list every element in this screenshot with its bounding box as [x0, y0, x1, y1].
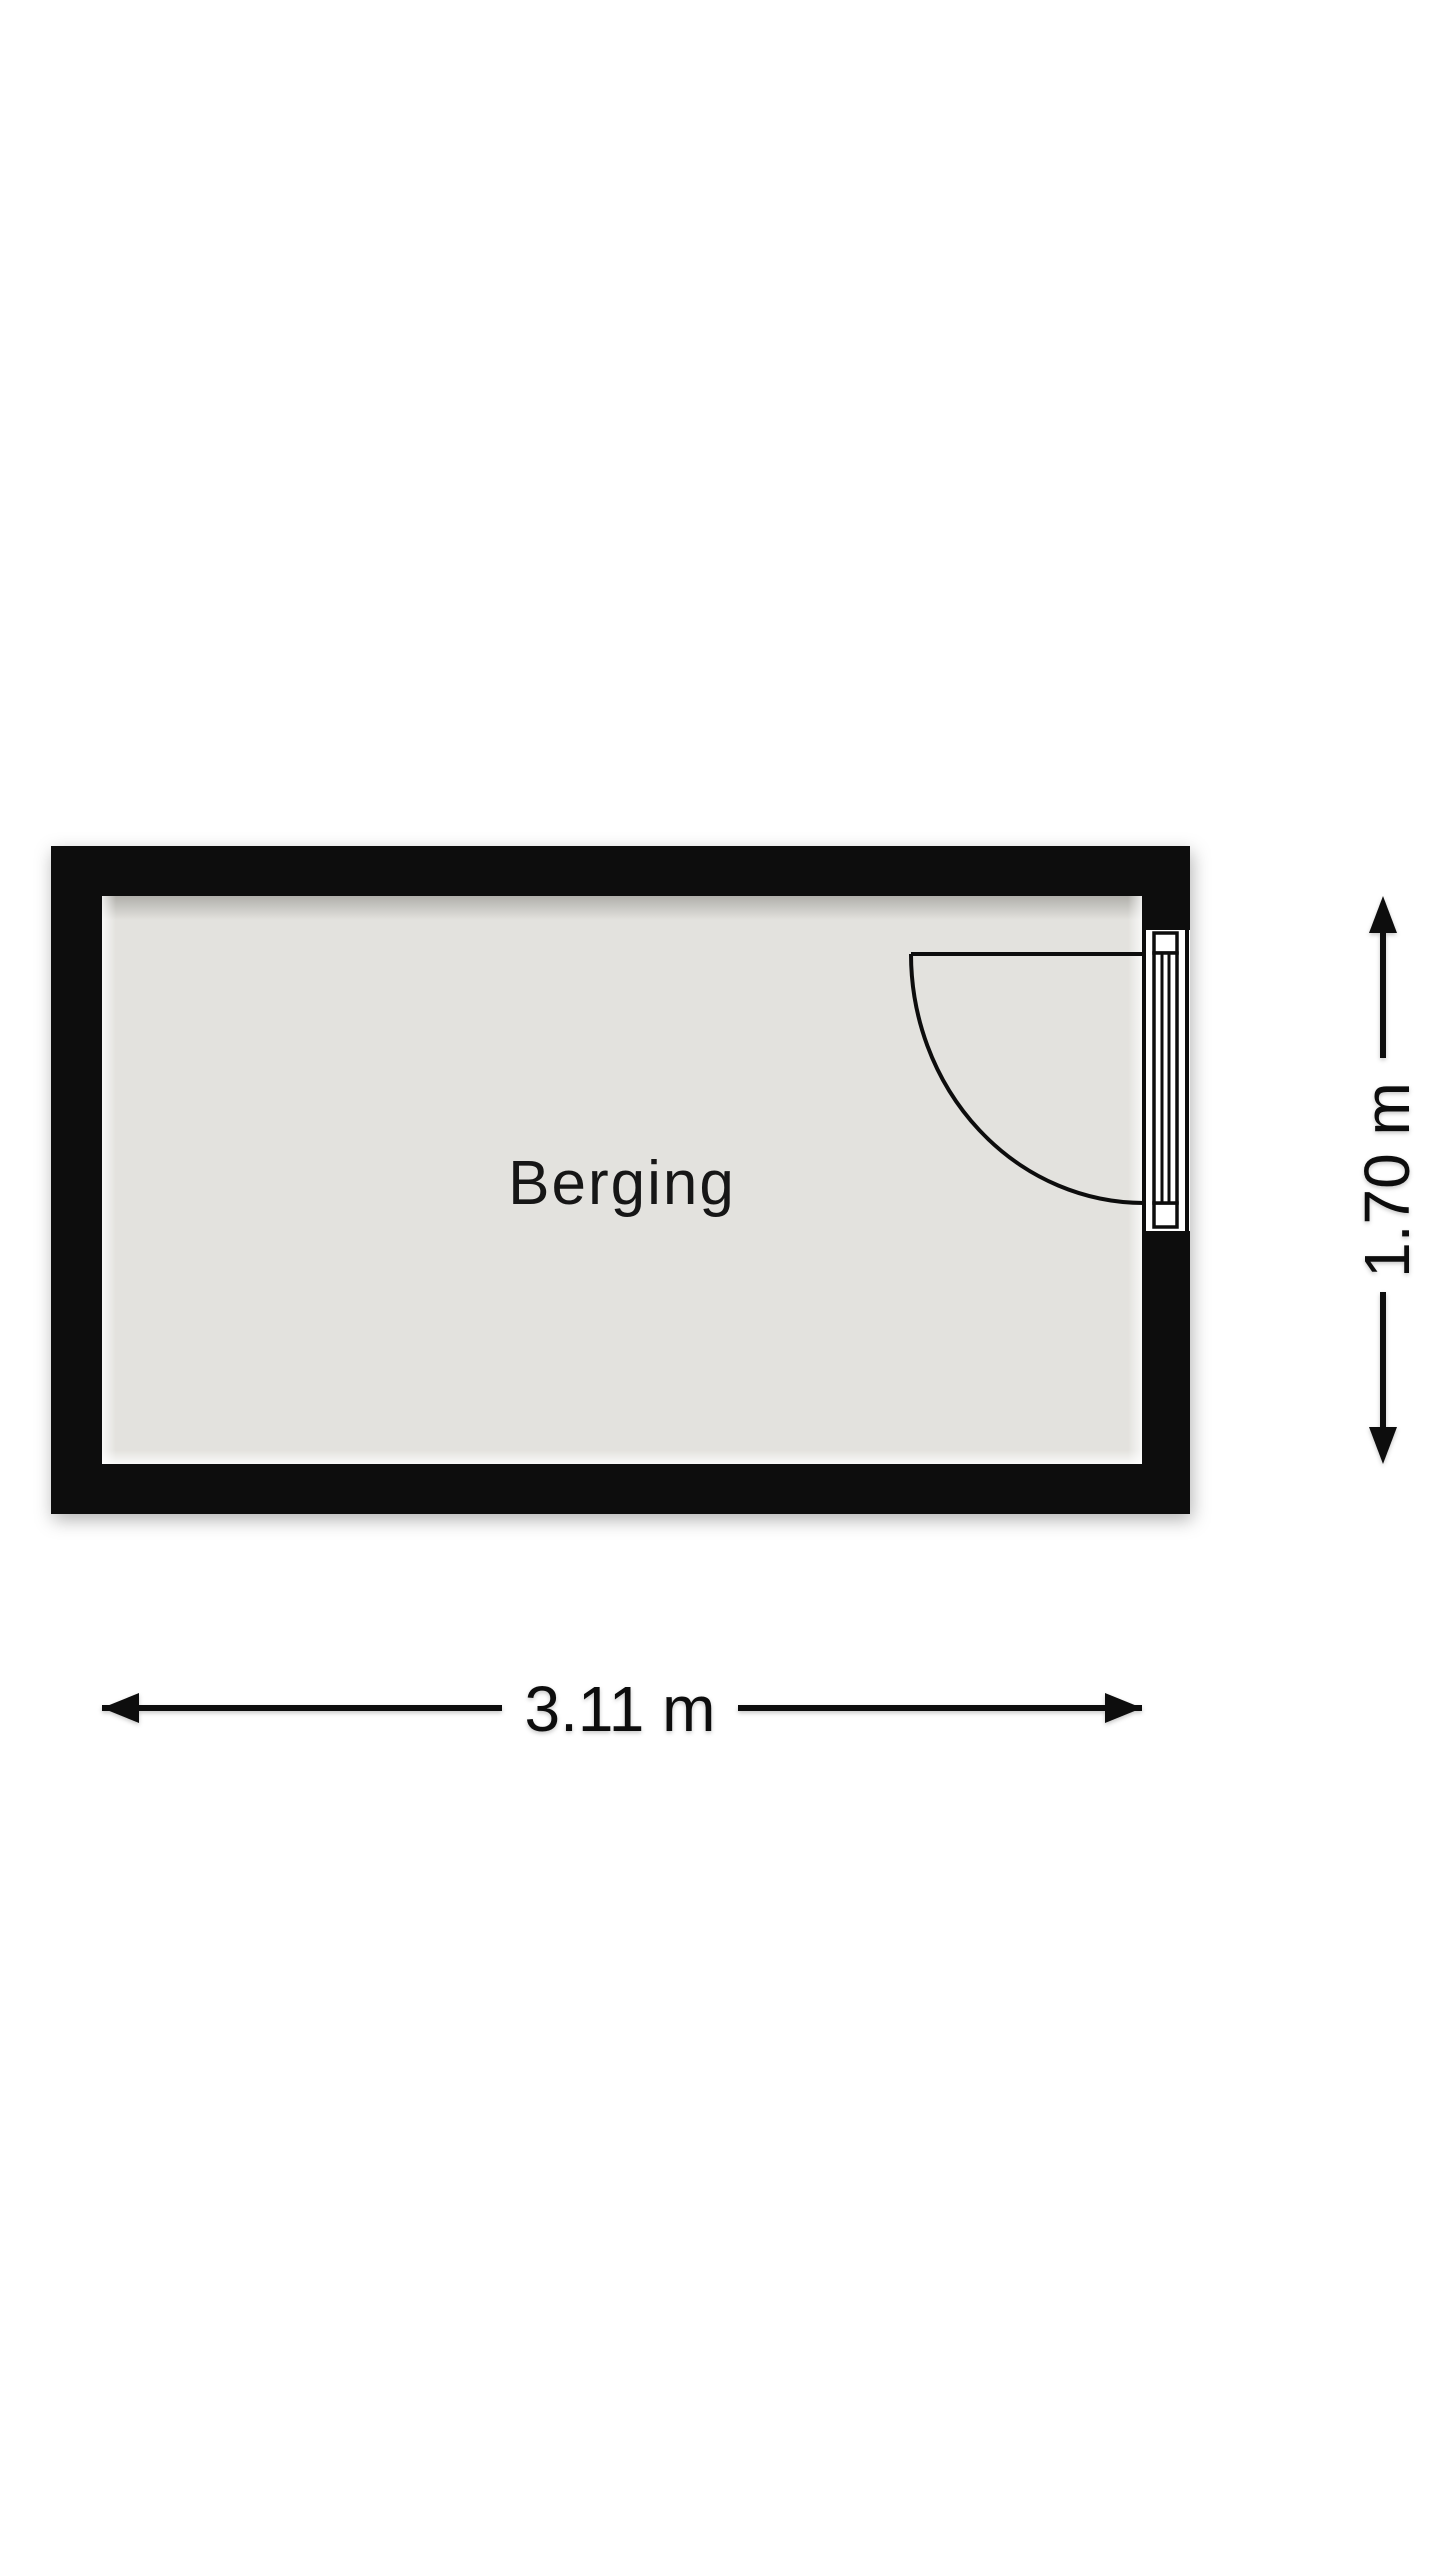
wall-left [51, 846, 102, 1514]
wall-right-upper-stub [1142, 846, 1190, 930]
dim-height-arrowhead-bottom [1369, 1427, 1397, 1464]
wall-bottom [51, 1464, 1190, 1514]
wall-top [51, 846, 1190, 896]
floorplan-svg: Berging 3.11 m 1.70 m [0, 0, 1440, 2560]
floor-right-highlight [1128, 896, 1142, 1464]
dim-width-arrowhead-right [1105, 1693, 1142, 1723]
room-label: Berging [508, 1149, 736, 1218]
door-frame-sill-block [1154, 1203, 1177, 1227]
dim-height-label: 1.70 m [1351, 1082, 1423, 1278]
dimension-width: 3.11 m [102, 1673, 1142, 1745]
floor-left-highlight [102, 896, 116, 1464]
floor-bottom-highlight [102, 1450, 1142, 1464]
door-panel [1154, 953, 1177, 1203]
wall-right-lower [1142, 1231, 1190, 1514]
dim-height-arrowhead-top [1369, 896, 1397, 933]
door-frame-head-block [1154, 933, 1177, 953]
dim-width-arrowhead-left [102, 1693, 139, 1723]
dimension-height: 1.70 m [1351, 896, 1423, 1464]
dim-width-label: 3.11 m [525, 1673, 716, 1745]
floorplan-canvas: Berging 3.11 m 1.70 m [0, 0, 1440, 2560]
floor-top-inner-shadow [102, 896, 1142, 920]
